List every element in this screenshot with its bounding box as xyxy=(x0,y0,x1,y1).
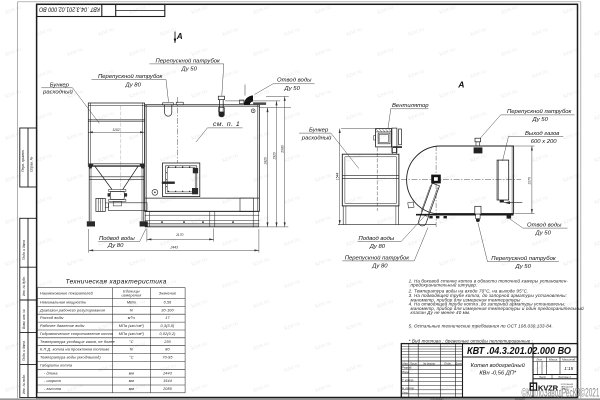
svg-text:2443: 2443 xyxy=(170,246,179,250)
svg-text:Подп.: Подп. xyxy=(444,361,452,365)
svg-text:мм: мм xyxy=(129,387,135,391)
svg-text:Масштаб: Масштаб xyxy=(562,357,575,361)
svg-text:Лист: Лист xyxy=(538,375,547,379)
svg-text:0,02(0,2): 0,02(0,2) xyxy=(159,332,176,336)
svg-text:предохранительный штуцер.: предохранительный штуцер. xyxy=(411,281,478,287)
svg-text:МВт: МВт xyxy=(127,301,136,305)
svg-text:80: 80 xyxy=(165,348,170,352)
svg-text:Взам. инв. №: Взам. инв. № xyxy=(22,309,26,329)
svg-text:Отвод воды: Отвод воды xyxy=(527,223,562,229)
svg-text:Наименование показателей: Наименование показателей xyxy=(40,292,94,296)
svg-text:Ду 80: Ду 80 xyxy=(371,263,388,269)
svg-text:Вентилятор: Вентилятор xyxy=(392,103,429,109)
svg-text:КОТЕЛЬНЫЙ: КОТЕЛЬНЫЙ xyxy=(561,383,574,386)
svg-text:1102: 1102 xyxy=(112,128,119,132)
svg-text:Ду 50: Ду 50 xyxy=(532,117,549,123)
svg-text:Лит.: Лит. xyxy=(535,357,543,361)
svg-text:Утв.: Утв. xyxy=(402,390,409,394)
svg-text:Значение: Значение xyxy=(159,292,176,296)
svg-text:мм: мм xyxy=(129,371,135,375)
svg-text:Номинальная мощность: Номинальная мощность xyxy=(40,301,86,305)
svg-text:Техническая характеристика: Техническая характеристика xyxy=(66,279,167,286)
svg-text:мм: мм xyxy=(129,379,135,383)
svg-text:клапан Ду не менее 40 мм.: клапан Ду не менее 40 мм. xyxy=(411,310,471,315)
svg-text:1544: 1544 xyxy=(335,173,339,181)
svg-text:- высота: - высота xyxy=(44,387,61,391)
svg-text:°С: °С xyxy=(129,356,134,360)
svg-text:Перв. примен.: Перв. примен. xyxy=(21,149,25,172)
svg-text:Перепускной патрубок: Перепускной патрубок xyxy=(345,254,410,261)
svg-text:Подп. и дата: Подп. и дата xyxy=(22,341,26,361)
svg-text:%: % xyxy=(130,308,134,312)
svg-text:Дата: Дата xyxy=(454,361,463,365)
svg-text:измерения: измерения xyxy=(121,294,141,298)
svg-text:Отвод воды: Отвод воды xyxy=(277,78,312,84)
svg-text:70-95: 70-95 xyxy=(162,356,173,360)
svg-text:1:15: 1:15 xyxy=(564,366,573,371)
svg-text:КВТ .04.3.201.02.000 ВО: КВТ .04.3.201.02.000 ВО xyxy=(38,5,100,12)
svg-text:2080: 2080 xyxy=(281,145,285,154)
svg-text:Бункер: Бункер xyxy=(50,82,70,88)
svg-text:Перепускной патрубок: Перепускной патрубок xyxy=(491,255,556,262)
svg-text:2080: 2080 xyxy=(162,387,173,391)
svg-text:Т. контр.: Т. контр. xyxy=(402,378,414,382)
svg-text:600 х 200: 600 х 200 xyxy=(531,139,558,145)
svg-text:Перепускной патрубок: Перепускной патрубок xyxy=(156,57,221,64)
svg-text:Ду 80: Ду 80 xyxy=(125,82,142,88)
svg-text:К.П.Д. котла на проектном топл: К.П.Д. котла на проектном топливе xyxy=(40,348,109,352)
svg-text:Котел водогрейный: Котел водогрейный xyxy=(471,362,526,369)
svg-text:Перепускной патрубок: Перепускной патрубок xyxy=(507,108,572,115)
svg-text:- ширина: - ширина xyxy=(44,379,61,383)
svg-text:расходный: расходный xyxy=(301,134,332,141)
svg-text:Расход воды: Расход воды xyxy=(40,316,64,320)
svg-text:Габариты котла: Габариты котла xyxy=(40,363,72,367)
svg-text:Ду 50: Ду 50 xyxy=(181,66,198,72)
svg-text:1170: 1170 xyxy=(176,233,183,237)
svg-text:Диапазон рабочего регулировани: Диапазон рабочего регулирования xyxy=(39,308,105,312)
svg-text:* Вид топлива : древесные от: * Вид топлива : древесные отходы пеллети… xyxy=(409,339,534,344)
svg-text:Бункер: Бункер xyxy=(309,128,329,134)
svg-text:м³/ч: м³/ч xyxy=(128,316,135,320)
svg-text:5. Остальные технические треб: 5. Остальные технические требования по О… xyxy=(409,323,553,328)
svg-text:Рабочее давление воды: Рабочее давление воды xyxy=(40,324,85,328)
svg-text:0,3(3,0): 0,3(3,0) xyxy=(161,324,176,328)
svg-text:230: 230 xyxy=(163,340,171,344)
svg-text:- длина: - длина xyxy=(44,371,58,375)
svg-text:1544: 1544 xyxy=(163,379,172,383)
svg-text:17: 17 xyxy=(165,316,170,320)
svg-text:©КотлоЗаводРесКЗ©2021: ©КотлоЗаводРесКЗ©2021 xyxy=(522,387,600,399)
svg-text:Подвод воды: Подвод воды xyxy=(359,236,395,242)
svg-text:Выход газов: Выход газов xyxy=(525,131,559,137)
svg-text:Инв. № подл.: Инв. № подл. xyxy=(22,374,26,394)
svg-text:Инв. № дубл.: Инв. № дубл. xyxy=(22,276,26,296)
svg-text:КВТ .04.3.201.02.000 ВО: КВТ .04.3.201.02.000 ВО xyxy=(467,346,571,357)
svg-text:МПа (кгс/см²): МПа (кгс/см²) xyxy=(119,324,145,328)
svg-text:Перепускной патрубок: Перепускной патрубок xyxy=(98,73,163,80)
svg-text:А: А xyxy=(457,80,464,90)
svg-text:Листов 1: Листов 1 xyxy=(557,375,571,379)
svg-text:Ду 80: Ду 80 xyxy=(369,244,386,250)
svg-text:1920: 1920 xyxy=(272,152,276,160)
svg-text:%: % xyxy=(130,348,134,352)
svg-text:30-100: 30-100 xyxy=(161,308,174,312)
svg-text:0,56: 0,56 xyxy=(164,301,173,305)
svg-text:Подп. и дата: Подп. и дата xyxy=(22,240,26,260)
svg-text:Ду 50: Ду 50 xyxy=(535,230,552,236)
svg-text:1820: 1820 xyxy=(263,157,267,165)
svg-text:1070: 1070 xyxy=(528,177,532,185)
svg-text:Температура воды (вход/выход): Температура воды (вход/выход) xyxy=(40,356,101,360)
svg-text:МПа (кгс/см²): МПа (кгс/см²) xyxy=(119,332,145,336)
svg-text:2443: 2443 xyxy=(162,371,173,375)
svg-text:Справ. №: Справ. № xyxy=(30,156,34,172)
svg-text:Ду 50: Ду 50 xyxy=(284,86,301,92)
svg-text:КВн -0,56 ДП*: КВн -0,56 ДП* xyxy=(479,370,517,376)
svg-text:№ докум.: № докум. xyxy=(423,361,436,365)
svg-text:Ду 50: Ду 50 xyxy=(515,264,532,270)
svg-text:Масса: Масса xyxy=(549,357,558,361)
svg-text:Температура уходящих газов, не: Температура уходящих газов, не более xyxy=(40,340,115,344)
svg-text:см. п. 1: см. п. 1 xyxy=(213,121,240,128)
svg-text:Ду 80: Ду 80 xyxy=(107,243,124,249)
svg-text:Пров.: Пров. xyxy=(402,370,410,374)
svg-text:°С: °С xyxy=(129,340,134,344)
svg-text:А: А xyxy=(176,32,183,41)
svg-text:расходный: расходный xyxy=(42,89,73,96)
svg-text:Гидравлическое сопротивление к: Гидравлическое сопротивление котла xyxy=(40,332,113,336)
